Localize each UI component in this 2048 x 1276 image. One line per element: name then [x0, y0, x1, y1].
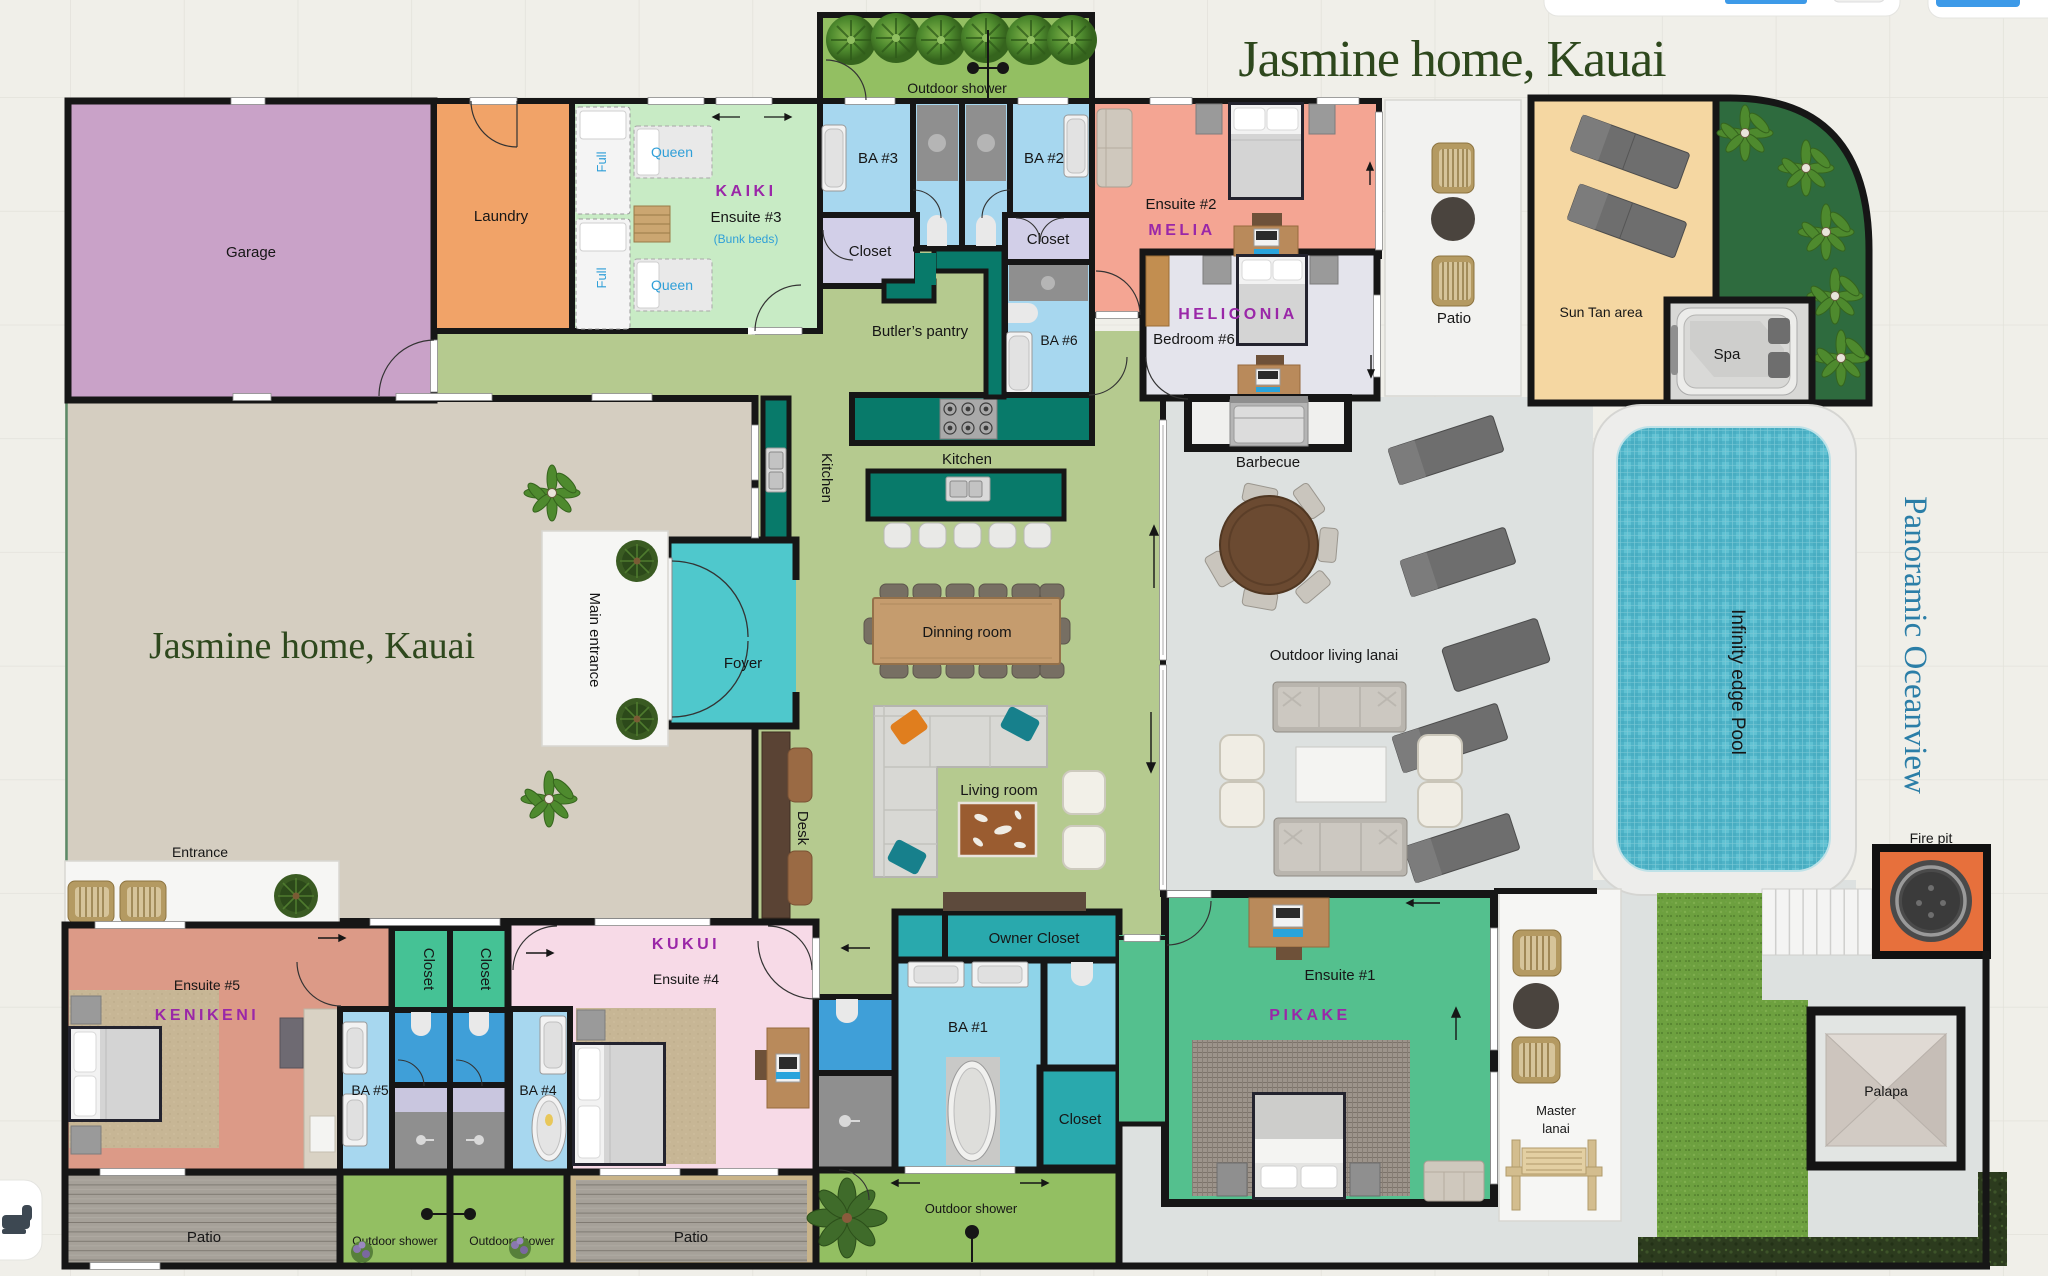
svg-text:Palapa: Palapa [1864, 1083, 1908, 1099]
svg-text:MELIA: MELIA [1148, 222, 1215, 239]
svg-text:Ensuite #1: Ensuite #1 [1305, 967, 1376, 984]
svg-text:BA #1: BA #1 [948, 1019, 988, 1036]
svg-text:Full: Full [594, 151, 609, 172]
svg-text:Patio: Patio [674, 1229, 708, 1246]
svg-text:Dinning room: Dinning room [922, 624, 1011, 641]
svg-text:Ensuite #2: Ensuite #2 [1146, 196, 1217, 213]
svg-text:BA #3: BA #3 [858, 150, 898, 167]
svg-text:Laundry: Laundry [474, 208, 529, 225]
svg-text:BA #5: BA #5 [351, 1082, 389, 1098]
svg-text:Fire pit: Fire pit [1910, 830, 1953, 846]
svg-text:Entrance: Entrance [172, 844, 228, 860]
svg-text:Sun Tan area: Sun Tan area [1559, 304, 1642, 320]
svg-text:Spa: Spa [1714, 346, 1741, 363]
svg-text:Closet: Closet [477, 948, 494, 991]
svg-text:Owner Closet: Owner Closet [989, 930, 1081, 947]
svg-text:BA #6: BA #6 [1040, 332, 1078, 348]
svg-text:Desk: Desk [794, 811, 811, 846]
svg-text:Closet: Closet [420, 948, 437, 991]
svg-text:Outdoor living lanai: Outdoor living lanai [1270, 647, 1398, 664]
svg-text:Closet: Closet [1059, 1111, 1102, 1128]
svg-text:KENIKENI: KENIKENI [155, 1007, 259, 1024]
svg-text:Infinity edge Pool: Infinity edge Pool [1727, 609, 1748, 755]
svg-text:Ensuite #3: Ensuite #3 [711, 209, 782, 226]
svg-text:KUKUI: KUKUI [652, 936, 720, 953]
svg-text:Closet: Closet [1027, 231, 1070, 248]
svg-text:Kitchen: Kitchen [818, 453, 835, 503]
svg-text:Queen: Queen [651, 144, 693, 160]
svg-text:Closet: Closet [849, 243, 892, 260]
svg-text:Bedroom #6: Bedroom #6 [1153, 331, 1235, 348]
svg-text:Barbecue: Barbecue [1236, 454, 1300, 471]
svg-text:Butler’s pantry: Butler’s pantry [872, 323, 969, 340]
svg-text:Main entrance: Main entrance [586, 592, 603, 687]
svg-text:Patio: Patio [1437, 310, 1471, 327]
svg-text:Ensuite #4: Ensuite #4 [653, 971, 719, 987]
svg-text:lanai: lanai [1542, 1121, 1570, 1136]
svg-text:Ensuite #5: Ensuite #5 [174, 977, 240, 993]
svg-text:Full: Full [594, 267, 609, 288]
svg-text:Queen: Queen [651, 277, 693, 293]
svg-text:(Bunk beds): (Bunk beds) [714, 232, 779, 246]
svg-text:Outdoor shower: Outdoor shower [925, 1201, 1018, 1216]
svg-text:Master: Master [1536, 1103, 1576, 1118]
svg-text:PIKAKE: PIKAKE [1269, 1007, 1350, 1024]
svg-text:HELICONIA: HELICONIA [1178, 306, 1298, 323]
svg-text:Garage: Garage [226, 244, 276, 261]
svg-text:Kitchen: Kitchen [942, 451, 992, 468]
svg-text:Jasmine home, Kauai: Jasmine home, Kauai [1238, 31, 1666, 88]
svg-text:Jasmine home, Kauai: Jasmine home, Kauai [149, 625, 475, 667]
svg-text:Outdoor shower: Outdoor shower [907, 80, 1007, 96]
svg-text:KAIKI: KAIKI [715, 183, 776, 200]
svg-text:BA #2: BA #2 [1024, 150, 1064, 167]
svg-text:Foyer: Foyer [724, 655, 762, 672]
svg-text:Panoramic Oceanview: Panoramic Oceanview [1897, 496, 1933, 794]
svg-text:Living room: Living room [960, 782, 1038, 799]
svg-text:Patio: Patio [187, 1229, 221, 1246]
